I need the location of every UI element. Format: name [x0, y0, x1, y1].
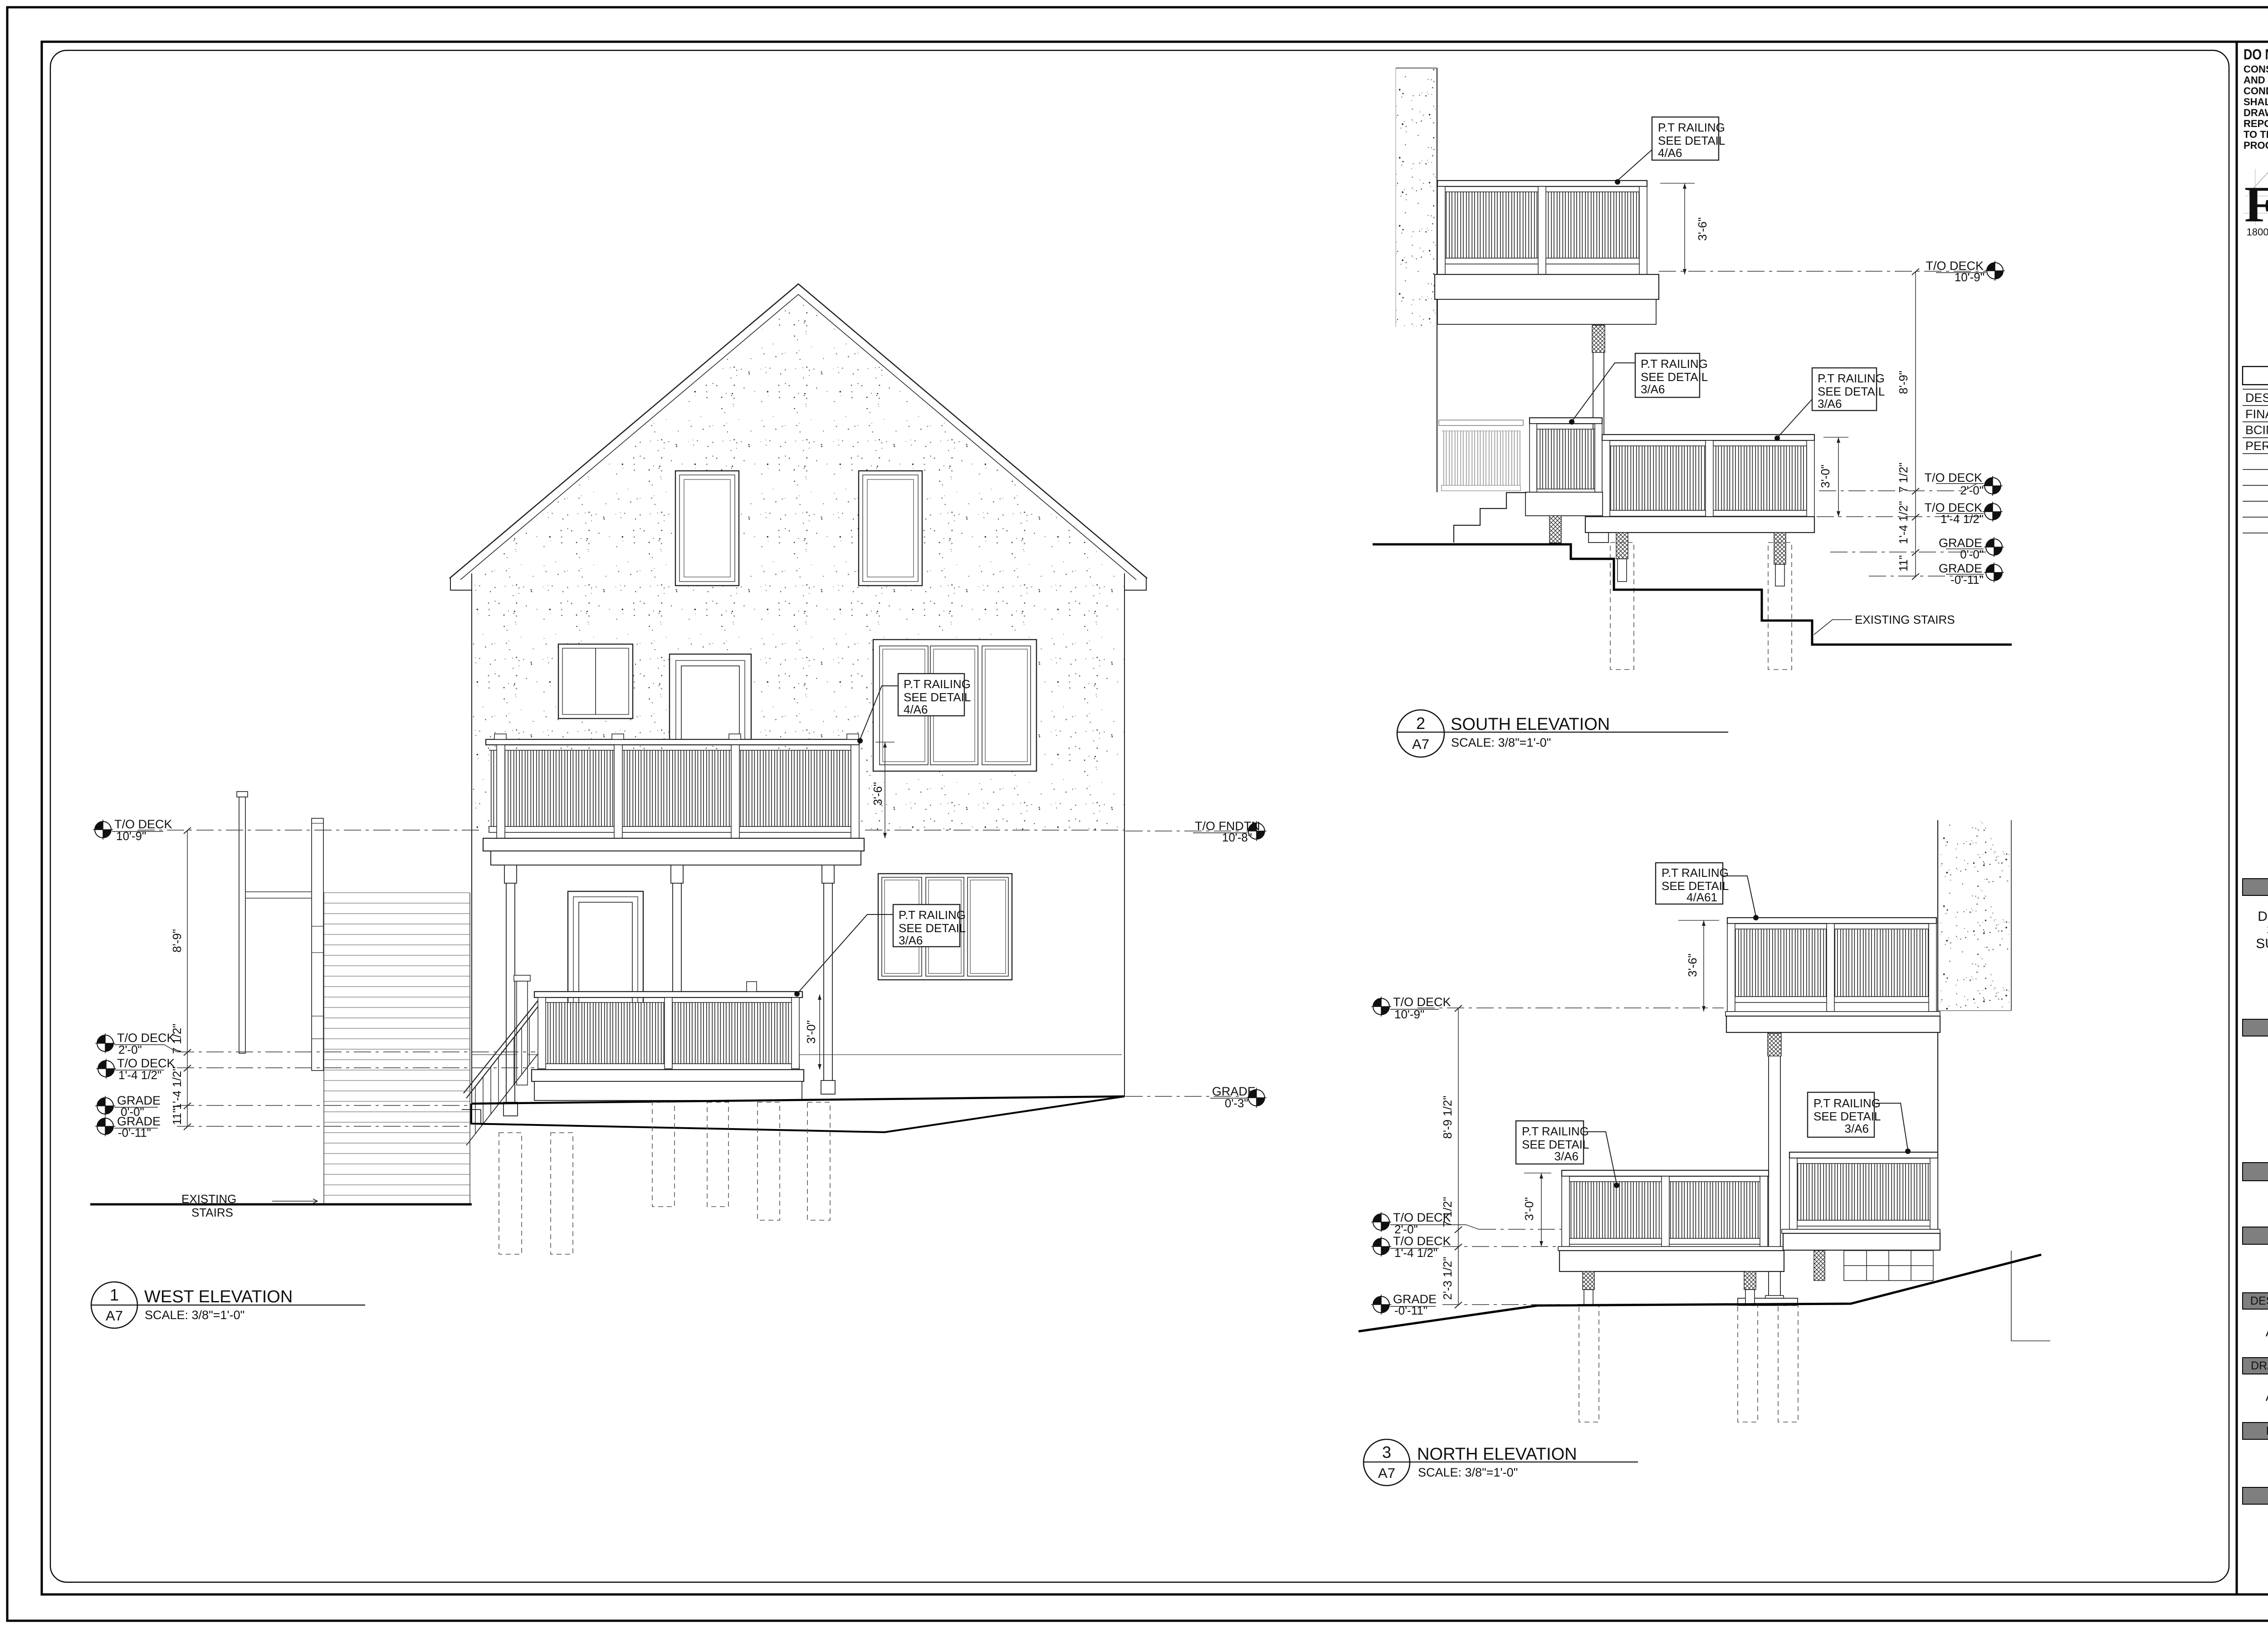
svg-text:1: 1 — [110, 1286, 119, 1304]
svg-text:4/A61: 4/A61 — [1686, 890, 1717, 904]
svg-text:2'-0": 2'-0" — [118, 1043, 142, 1056]
svg-text:FL: FL — [2244, 176, 2268, 233]
svg-text:11": 11" — [170, 1109, 184, 1125]
svg-text:SEE DETAIL: SEE DETAIL — [899, 921, 966, 935]
svg-text:3/A6: 3/A6 — [1818, 397, 1842, 411]
svg-text:FINAL DESIGN: FINAL DESIGN — [2245, 407, 2268, 421]
svg-text:3'-6": 3'-6" — [1686, 953, 1699, 977]
svg-text:AND VERIFY ALL EXISTING: AND VERIFY ALL EXISTING — [2244, 74, 2268, 86]
svg-text:A7: A7 — [1412, 736, 1429, 752]
svg-text:3/A6: 3/A6 — [899, 934, 923, 947]
svg-text:1'-4 1/2": 1'-4 1/2" — [1394, 1246, 1437, 1260]
svg-text:3'-0": 3'-0" — [1818, 464, 1832, 488]
svg-text:DESIGN REV: DESIGN REV — [2245, 391, 2268, 405]
svg-text:1'-4 1/2": 1'-4 1/2" — [170, 1066, 184, 1110]
svg-text:10'-9": 10'-9" — [116, 829, 146, 843]
svg-text:8'-9": 8'-9" — [170, 929, 184, 953]
svg-text:3/A6: 3/A6 — [1845, 1122, 1869, 1135]
svg-text:REPORT ANY INCONSISTENCIES: REPORT ANY INCONSISTENCIES — [2244, 118, 2268, 129]
svg-text:SHALL CHECK AND VERIFY ALL: SHALL CHECK AND VERIFY ALL — [2244, 96, 2268, 108]
svg-text:-0'-11": -0'-11" — [1394, 1304, 1427, 1317]
svg-text:8'-9": 8'-9" — [1897, 371, 1910, 394]
svg-text:CONDITIONS ON SITE AND: CONDITIONS ON SITE AND — [2244, 85, 2268, 97]
svg-text:STAIRS: STAIRS — [191, 1206, 233, 1219]
svg-text:1'-4 1/2": 1'-4 1/2" — [118, 1068, 161, 1082]
svg-text:1'-4 1/2": 1'-4 1/2" — [1897, 501, 1910, 544]
svg-text:P.T RAILING: P.T RAILING — [1522, 1125, 1589, 1138]
svg-text:T/O DECK: T/O DECK — [1924, 471, 1982, 484]
svg-text:P.T RAILING: P.T RAILING — [1662, 866, 1729, 880]
svg-text:10'-9": 10'-9" — [1394, 1007, 1424, 1021]
svg-text:P.T RAILING: P.T RAILING — [1641, 357, 1708, 371]
svg-text:1800 CORAL COURT, SUDBURY: 1800 CORAL COURT, SUDBURY — [2247, 226, 2268, 238]
svg-text:3'-6": 3'-6" — [871, 782, 885, 806]
svg-text:P.T RAILING: P.T RAILING — [904, 677, 971, 691]
svg-text:WEST ELEVATION: WEST ELEVATION — [144, 1287, 293, 1306]
svg-text:4/A6: 4/A6 — [904, 703, 928, 716]
svg-text:A7: A7 — [106, 1308, 123, 1324]
svg-text:3'-0": 3'-0" — [804, 1020, 818, 1044]
svg-text:P.T RAILING: P.T RAILING — [899, 908, 966, 922]
svg-text:2'-0": 2'-0" — [1960, 484, 1984, 497]
svg-text:10'-9": 10'-9" — [1955, 270, 1984, 284]
svg-text:4/A6: 4/A6 — [1658, 146, 1682, 160]
svg-text:T/O DECK: T/O DECK — [1393, 995, 1451, 1009]
svg-text:PERMIT: PERMIT — [2245, 439, 2268, 453]
svg-text:0'-0": 0'-0" — [1960, 548, 1984, 561]
svg-text:3/A6: 3/A6 — [1554, 1149, 1579, 1163]
svg-text:EXISTING STAIRS: EXISTING STAIRS — [1855, 613, 1955, 626]
svg-text:2'-3 1/2": 2'-3 1/2" — [1441, 1257, 1454, 1300]
svg-text:SEE DETAIL: SEE DETAIL — [904, 690, 971, 704]
svg-text:CONSTRUCTOR SHALL CHECK: CONSTRUCTOR SHALL CHECK — [2244, 64, 2268, 75]
svg-text:DESIGN BY: DESIGN BY — [2250, 1295, 2268, 1307]
svg-text:3: 3 — [1382, 1443, 1391, 1462]
svg-text:DRAWING DIMENSIONS AND: DRAWING DIMENSIONS AND — [2244, 107, 2268, 118]
svg-text:PROJECT NUMBER: PROJECT NUMBER — [2266, 1424, 2268, 1437]
svg-text:SUDBURY, ONTARIO: SUDBURY, ONTARIO — [2256, 936, 2268, 951]
svg-text:SEE DETAIL: SEE DETAIL — [1813, 1110, 1881, 1123]
svg-text:0'-3": 0'-3" — [1225, 1096, 1248, 1110]
svg-text:A7: A7 — [1378, 1465, 1395, 1481]
svg-text:SCALE: 3/8"=1'-0": SCALE: 3/8"=1'-0" — [1418, 1466, 1518, 1479]
svg-text:SCALE: 3/8"=1'-0": SCALE: 3/8"=1'-0" — [145, 1308, 244, 1322]
svg-text:P.T RAILING: P.T RAILING — [1818, 372, 1885, 385]
svg-text:8'-9 1/2": 8'-9 1/2" — [1441, 1095, 1454, 1139]
svg-text:P.T RAILING: P.T RAILING — [1813, 1096, 1881, 1110]
svg-text:A.A.L: A.A.L — [2266, 1389, 2268, 1403]
svg-text:DRAWN BY: DRAWN BY — [2251, 1359, 2268, 1372]
svg-text:DO NOT SCALE DRAWINGS: DO NOT SCALE DRAWINGS — [2244, 46, 2268, 63]
svg-text:SEE DETAIL: SEE DETAIL — [1658, 134, 1725, 147]
svg-text:TO THE DESIGNER BEFORE: TO THE DESIGNER BEFORE — [2244, 129, 2268, 140]
svg-text:DECK RENOVATION: DECK RENOVATION — [2258, 909, 2268, 924]
svg-text:SEE DETAIL: SEE DETAIL — [1818, 385, 1885, 398]
svg-text:3'-6": 3'-6" — [1696, 217, 1709, 241]
svg-text:-0'-11": -0'-11" — [1950, 573, 1984, 587]
svg-text:2: 2 — [1416, 714, 1425, 733]
svg-text:11": 11" — [1897, 555, 1910, 572]
svg-text:10'-8": 10'-8" — [1222, 831, 1252, 844]
svg-text:3'-0": 3'-0" — [1522, 1197, 1536, 1221]
svg-text:P.T RAILING: P.T RAILING — [1658, 121, 1725, 134]
svg-text:NORTH ELEVATION: NORTH ELEVATION — [1417, 1445, 1577, 1464]
svg-text:A.A.L: A.A.L — [2266, 1325, 2268, 1339]
svg-text:1'-4 1/2": 1'-4 1/2" — [1941, 512, 1984, 526]
svg-text:SEE DETAIL: SEE DETAIL — [1641, 370, 1708, 384]
svg-text:3/A6: 3/A6 — [1641, 382, 1665, 396]
svg-text:7 1/2": 7 1/2" — [1897, 462, 1910, 493]
svg-text:PROCEEDING WITH THE WORK: PROCEEDING WITH THE WORK — [2244, 140, 2268, 151]
svg-text:BCIN: BCIN — [2245, 423, 2268, 437]
svg-text:SOUTH ELEVATION: SOUTH ELEVATION — [1451, 715, 1610, 734]
svg-text:SCALE: 3/8"=1'-0": SCALE: 3/8"=1'-0" — [1451, 736, 1551, 749]
svg-text:-0'-11": -0'-11" — [118, 1126, 151, 1139]
